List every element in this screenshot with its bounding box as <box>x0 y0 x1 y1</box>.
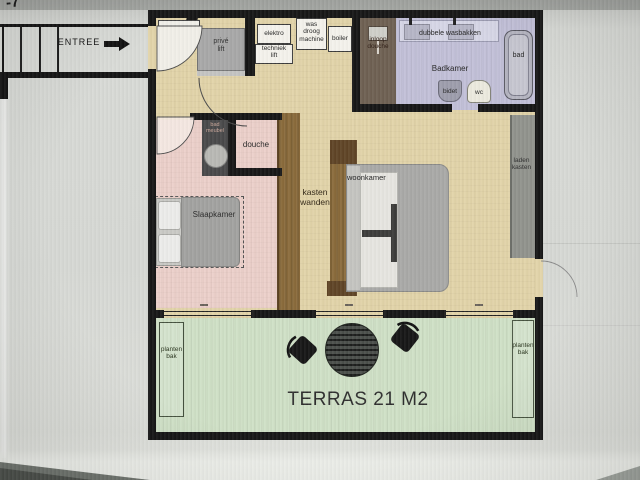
drawer-cabinet-label: laden kasten <box>506 157 537 172</box>
entree-label: ENTREE <box>56 37 102 47</box>
terrace-window <box>442 311 517 316</box>
round-sink <box>204 144 228 168</box>
photo-glare-strip <box>2 58 6 458</box>
planter-box <box>512 320 534 418</box>
elevator-door <box>197 70 245 76</box>
bathroom-label: Badkamer <box>420 64 480 73</box>
vanity-label: bad meubel <box>198 122 232 135</box>
stair-tread <box>20 27 22 72</box>
side-door-opening <box>535 259 543 297</box>
entree-arrow-icon <box>104 41 119 47</box>
bathtub-label: bad <box>504 52 533 60</box>
floor-plan-photo: -7 ENTREE <box>0 0 640 480</box>
screen-crease <box>540 325 640 326</box>
electro-label: elektro <box>257 30 291 37</box>
faucet-icon <box>453 17 456 25</box>
outer-wall <box>148 10 543 18</box>
outer-wall <box>148 432 543 440</box>
closet-cap <box>330 140 357 164</box>
wall-segment <box>387 310 442 318</box>
walkin-shower-label: inloop douche <box>356 36 400 51</box>
technics-label: techniek lift <box>255 45 293 60</box>
terrace-window <box>312 311 387 316</box>
living-room-label: woonkamer <box>347 174 405 183</box>
dimension-mark <box>345 304 353 306</box>
bidet-label: bidet <box>434 88 466 95</box>
planter-label: planten bak <box>507 342 539 357</box>
terrace-table <box>325 323 379 377</box>
window-tick <box>160 310 164 318</box>
drawer-cabinet <box>510 115 535 258</box>
wall-segment <box>352 104 452 112</box>
entry-door-opening <box>148 26 156 69</box>
window-tick <box>513 310 517 318</box>
photo-top-shade <box>0 0 640 10</box>
wall-segment <box>228 168 282 176</box>
planter-label: planten bak <box>154 346 189 361</box>
wall-segment <box>245 18 255 76</box>
terrace-window <box>160 311 255 316</box>
living-bed-headboard <box>347 166 360 290</box>
closet-walls-label: kasten wanden <box>294 188 336 208</box>
terrace-label: TERRAS 21 M2 <box>258 389 458 411</box>
window-tick <box>251 310 255 318</box>
dimension-mark <box>200 304 208 306</box>
stair-tread <box>39 27 41 72</box>
side-table <box>362 230 392 237</box>
closet-wall-strip <box>277 113 300 310</box>
staircase <box>0 24 150 78</box>
window-tick <box>312 310 316 318</box>
window-tick <box>442 310 446 318</box>
pillow <box>158 201 181 230</box>
planter-box <box>159 322 184 417</box>
wall-segment <box>352 18 360 110</box>
handwritten-mark: -7 <box>5 0 20 12</box>
entry-door-leaf <box>158 20 200 28</box>
boiler-label: boiler <box>328 35 352 42</box>
private-elevator-label: privé lift <box>197 38 245 54</box>
toilet-label: wc <box>467 89 491 96</box>
dimension-mark <box>475 304 483 306</box>
stair-tread <box>57 27 59 72</box>
bedroom-label: Slaapkamer <box>183 210 245 219</box>
wall-segment <box>190 113 282 120</box>
faucet-icon <box>409 17 412 25</box>
window-tick <box>383 310 387 318</box>
pillow <box>158 234 181 263</box>
outer-wall <box>148 10 156 440</box>
entree-arrow-icon <box>119 37 130 51</box>
bathtub-inner <box>508 34 529 96</box>
stair-tread <box>2 27 4 72</box>
wall-segment <box>478 104 535 112</box>
wall-segment <box>255 310 312 318</box>
washer-dryer-label: was droog machine <box>296 21 327 43</box>
wall-stub <box>0 73 8 99</box>
outer-wall <box>535 10 543 440</box>
shower-label: douche <box>236 140 276 149</box>
double-sinks-label: dubbele wasbakken <box>398 30 502 38</box>
bed <box>181 197 240 267</box>
